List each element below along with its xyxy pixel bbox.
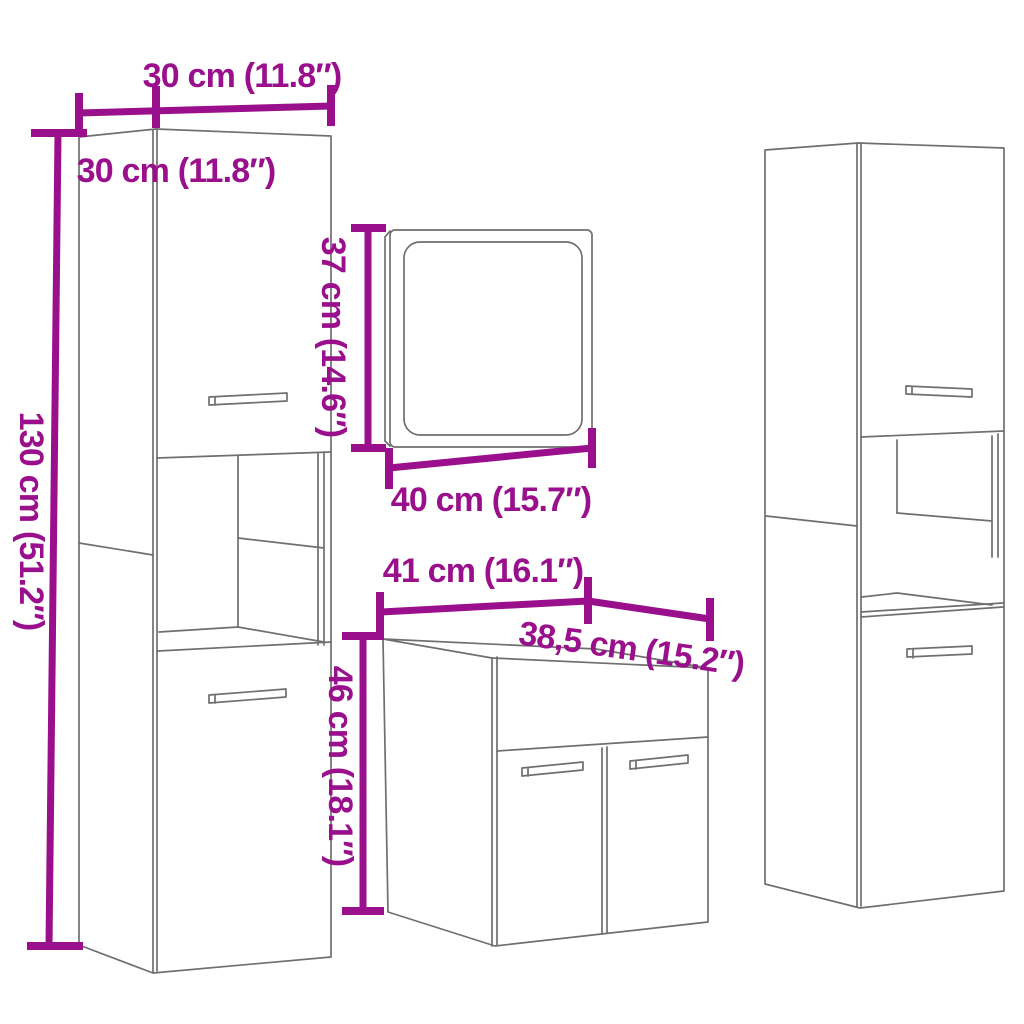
left-cabinet-top-handle — [209, 393, 287, 405]
dim-label-sink-height: 46 cm (18.1″) — [321, 666, 359, 867]
dim-cabinet-height: 130 cm (51.2″) — [12, 133, 87, 946]
sink-cabinet-left-handle — [522, 762, 583, 776]
right-cabinet-top-handle — [906, 386, 972, 397]
dim-mirror-height: 37 cm (14.6″) — [314, 228, 386, 448]
dim-mirror-width: 40 cm (15.7″) — [389, 428, 592, 519]
product-dimension-diagram: 30 cm (11.8″) 30 cm (11.8″) 130 cm (51.2… — [0, 0, 1024, 1024]
left-cabinet-bottom-handle — [209, 689, 286, 703]
right-cabinet-bottom-handle — [907, 646, 972, 657]
sink-cabinet-right-handle — [630, 755, 688, 769]
dim-label-sink-width: 41 cm (16.1″) — [383, 552, 584, 590]
dim-cabinet-width: 30 cm (11.8″) — [79, 57, 341, 134]
right-tall-cabinet — [765, 143, 1004, 908]
dim-label-mirror-height: 37 cm (14.6″) — [314, 237, 352, 438]
dim-cabinet-depth: 30 cm (11.8″) — [77, 152, 276, 190]
sink-cabinet — [383, 639, 708, 946]
dim-label-mirror-width: 40 cm (15.7″) — [391, 481, 592, 519]
mirror-cabinet — [385, 230, 592, 447]
dim-label-cabinet-depth: 30 cm (11.8″) — [77, 152, 276, 190]
mirror-glass — [404, 242, 582, 435]
dim-label-cabinet-width: 30 cm (11.8″) — [143, 57, 342, 95]
dim-sink-depth: 38,5 cm (15.2″) — [516, 598, 746, 684]
dim-label-cabinet-height: 130 cm (51.2″) — [12, 412, 50, 631]
left-tall-cabinet — [79, 129, 331, 973]
